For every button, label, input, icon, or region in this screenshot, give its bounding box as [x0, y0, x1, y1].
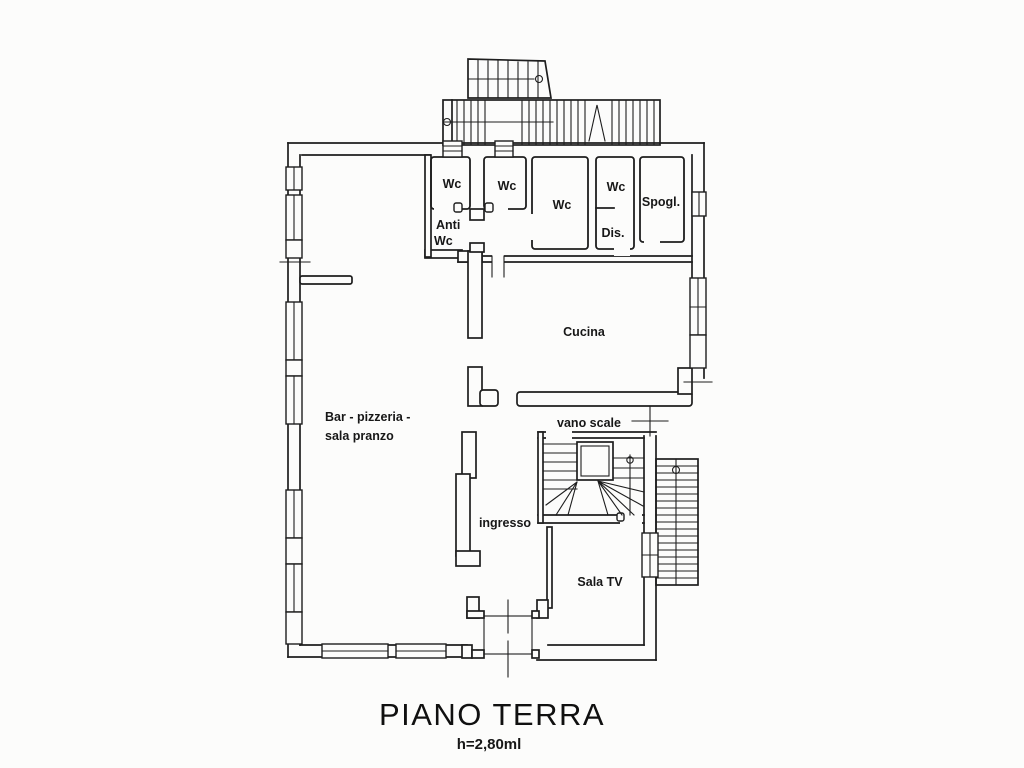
label-disimpegno: Dis. [602, 226, 625, 240]
label-spogliatoio: Spogl. [642, 195, 680, 209]
floor-plan-drawing: Wc Wc Wc Wc Spogl. Anti Wc Dis. Cucina B… [0, 0, 1024, 768]
label-cucina: Cucina [563, 325, 606, 339]
plan-height-note: h=2,80ml [457, 736, 522, 753]
right-exterior-stairs [656, 459, 698, 585]
kitchen-south-wall [517, 392, 692, 406]
label-wc1: Wc [443, 177, 462, 191]
floor-plan-page: Wc Wc Wc Wc Spogl. Anti Wc Dis. Cucina B… [0, 0, 1024, 768]
plan-title: PIANO TERRA [379, 697, 605, 732]
label-wc2: Wc [498, 179, 517, 193]
label-sala-tv: Sala TV [577, 575, 623, 589]
lift-shaft [577, 442, 613, 480]
label-wc3: Wc [553, 198, 572, 212]
label-bar-1: Bar - pizzeria - [325, 410, 410, 424]
bar-stub-wall [300, 276, 352, 284]
title-block: PIANO TERRA h=2,80ml [379, 697, 605, 753]
label-vano-scale: vano scale [557, 416, 621, 430]
entrance-vestibule [484, 600, 548, 677]
staircase-vano-scale [543, 442, 644, 515]
top-exterior-stairs [443, 59, 660, 145]
label-bar-2: sala pranzo [325, 429, 394, 443]
room-labels: Wc Wc Wc Wc Spogl. Anti Wc Dis. Cucina B… [325, 177, 680, 589]
label-ingresso: ingresso [479, 516, 531, 530]
bar-ingresso-partition [456, 251, 498, 658]
label-anti-wc-2: Wc [434, 234, 453, 248]
label-anti-wc-1: Anti [436, 218, 460, 232]
label-wc4: Wc [607, 180, 626, 194]
